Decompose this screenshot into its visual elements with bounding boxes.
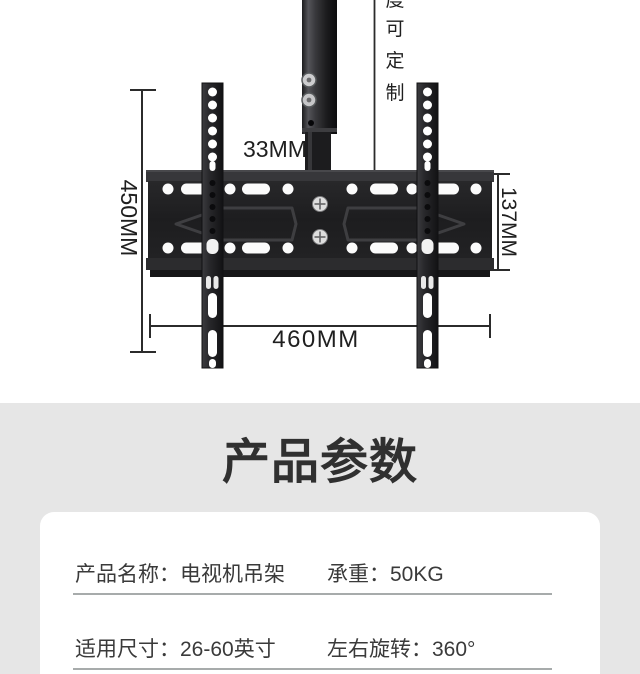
dimension-label-450mm: 450MM bbox=[116, 180, 142, 257]
svg-text:定: 定 bbox=[385, 50, 404, 72]
dimension-label-137mm: 137MM bbox=[497, 187, 520, 257]
spec-rotation: 左右旋转：360° bbox=[327, 633, 552, 663]
bracket-plate bbox=[146, 170, 494, 277]
tv-ceiling-mount-diagram: 450MM 137MM 460MM 33MM 度 可 定 制 bbox=[0, 0, 640, 403]
dimension-label-33mm: 33MM bbox=[243, 136, 307, 162]
spec-product-name: 产品名称：电视机吊架 bbox=[75, 558, 327, 588]
section-title: 产品参数 bbox=[0, 439, 640, 487]
page: 450MM 137MM 460MM 33MM 度 可 定 制 产品参数 产品名称… bbox=[0, 0, 640, 674]
product-diagram-area: 450MM 137MM 460MM 33MM 度 可 定 制 bbox=[0, 0, 640, 403]
adjustable-height-note: 度 可 定 制 bbox=[385, 0, 404, 104]
dimension-label-460mm: 460MM bbox=[272, 326, 360, 353]
spec-load-capacity: 承重：50KG bbox=[327, 558, 552, 588]
svg-text:可: 可 bbox=[385, 19, 404, 40]
spec-card: 产品名称：电视机吊架 承重：50KG 适用尺寸：26-60英寸 左右旋转：360… bbox=[40, 512, 600, 674]
left-tv-rail bbox=[202, 83, 223, 368]
mount-pole bbox=[302, 0, 337, 174]
svg-text:度: 度 bbox=[385, 0, 404, 11]
product-parameters-section: 产品参数 产品名称：电视机吊架 承重：50KG 适用尺寸：26-60英寸 左右旋… bbox=[0, 403, 640, 674]
spec-row-2: 适用尺寸：26-60英寸 左右旋转：360° bbox=[73, 595, 552, 670]
pole-pin-hole bbox=[308, 120, 314, 126]
spec-row-1: 产品名称：电视机吊架 承重：50KG bbox=[73, 512, 552, 595]
right-tv-rail bbox=[417, 83, 438, 368]
svg-text:制: 制 bbox=[385, 82, 404, 104]
spec-fit-size: 适用尺寸：26-60英寸 bbox=[75, 633, 327, 663]
